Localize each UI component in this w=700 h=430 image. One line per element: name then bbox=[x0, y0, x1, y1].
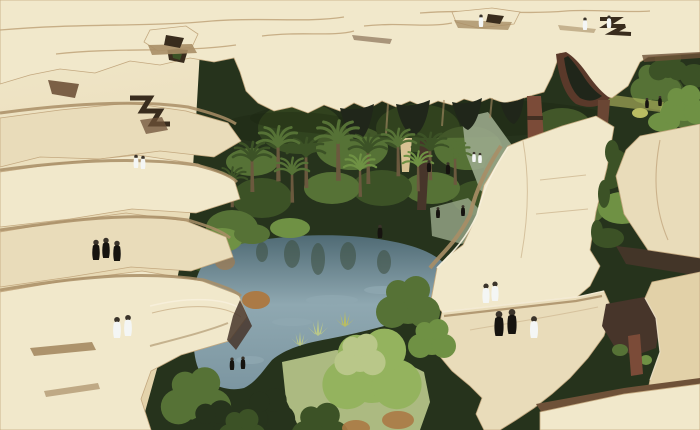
figure-white bbox=[478, 153, 482, 163]
figure-white bbox=[530, 316, 538, 338]
figure-black bbox=[494, 311, 503, 336]
figure-white bbox=[583, 18, 588, 30]
figure-white bbox=[134, 155, 139, 168]
figure-black bbox=[241, 357, 246, 369]
figure-black bbox=[92, 240, 99, 260]
figure-black bbox=[446, 162, 450, 174]
figure-white bbox=[491, 282, 498, 302]
figure-white bbox=[472, 152, 476, 162]
figure-white bbox=[124, 315, 132, 336]
figure-black bbox=[378, 225, 383, 238]
figure-white bbox=[607, 16, 612, 28]
figure-black bbox=[102, 238, 109, 258]
figure-white bbox=[479, 15, 484, 27]
rendering-canvas: Aerial view of a desert oasis park: crac… bbox=[0, 0, 700, 430]
figure-white bbox=[482, 284, 489, 304]
figure-black bbox=[113, 241, 120, 261]
figure-black bbox=[230, 358, 235, 370]
figure-white bbox=[141, 156, 146, 169]
figure-black bbox=[645, 98, 649, 108]
figure-black bbox=[658, 96, 662, 106]
figure-black bbox=[436, 207, 440, 218]
figure-black bbox=[461, 205, 465, 216]
figure-white bbox=[113, 317, 121, 338]
gap-foliage bbox=[612, 344, 628, 356]
figure-black bbox=[507, 309, 516, 334]
raised-plate-fragment bbox=[144, 26, 198, 55]
figure-black bbox=[427, 160, 431, 172]
